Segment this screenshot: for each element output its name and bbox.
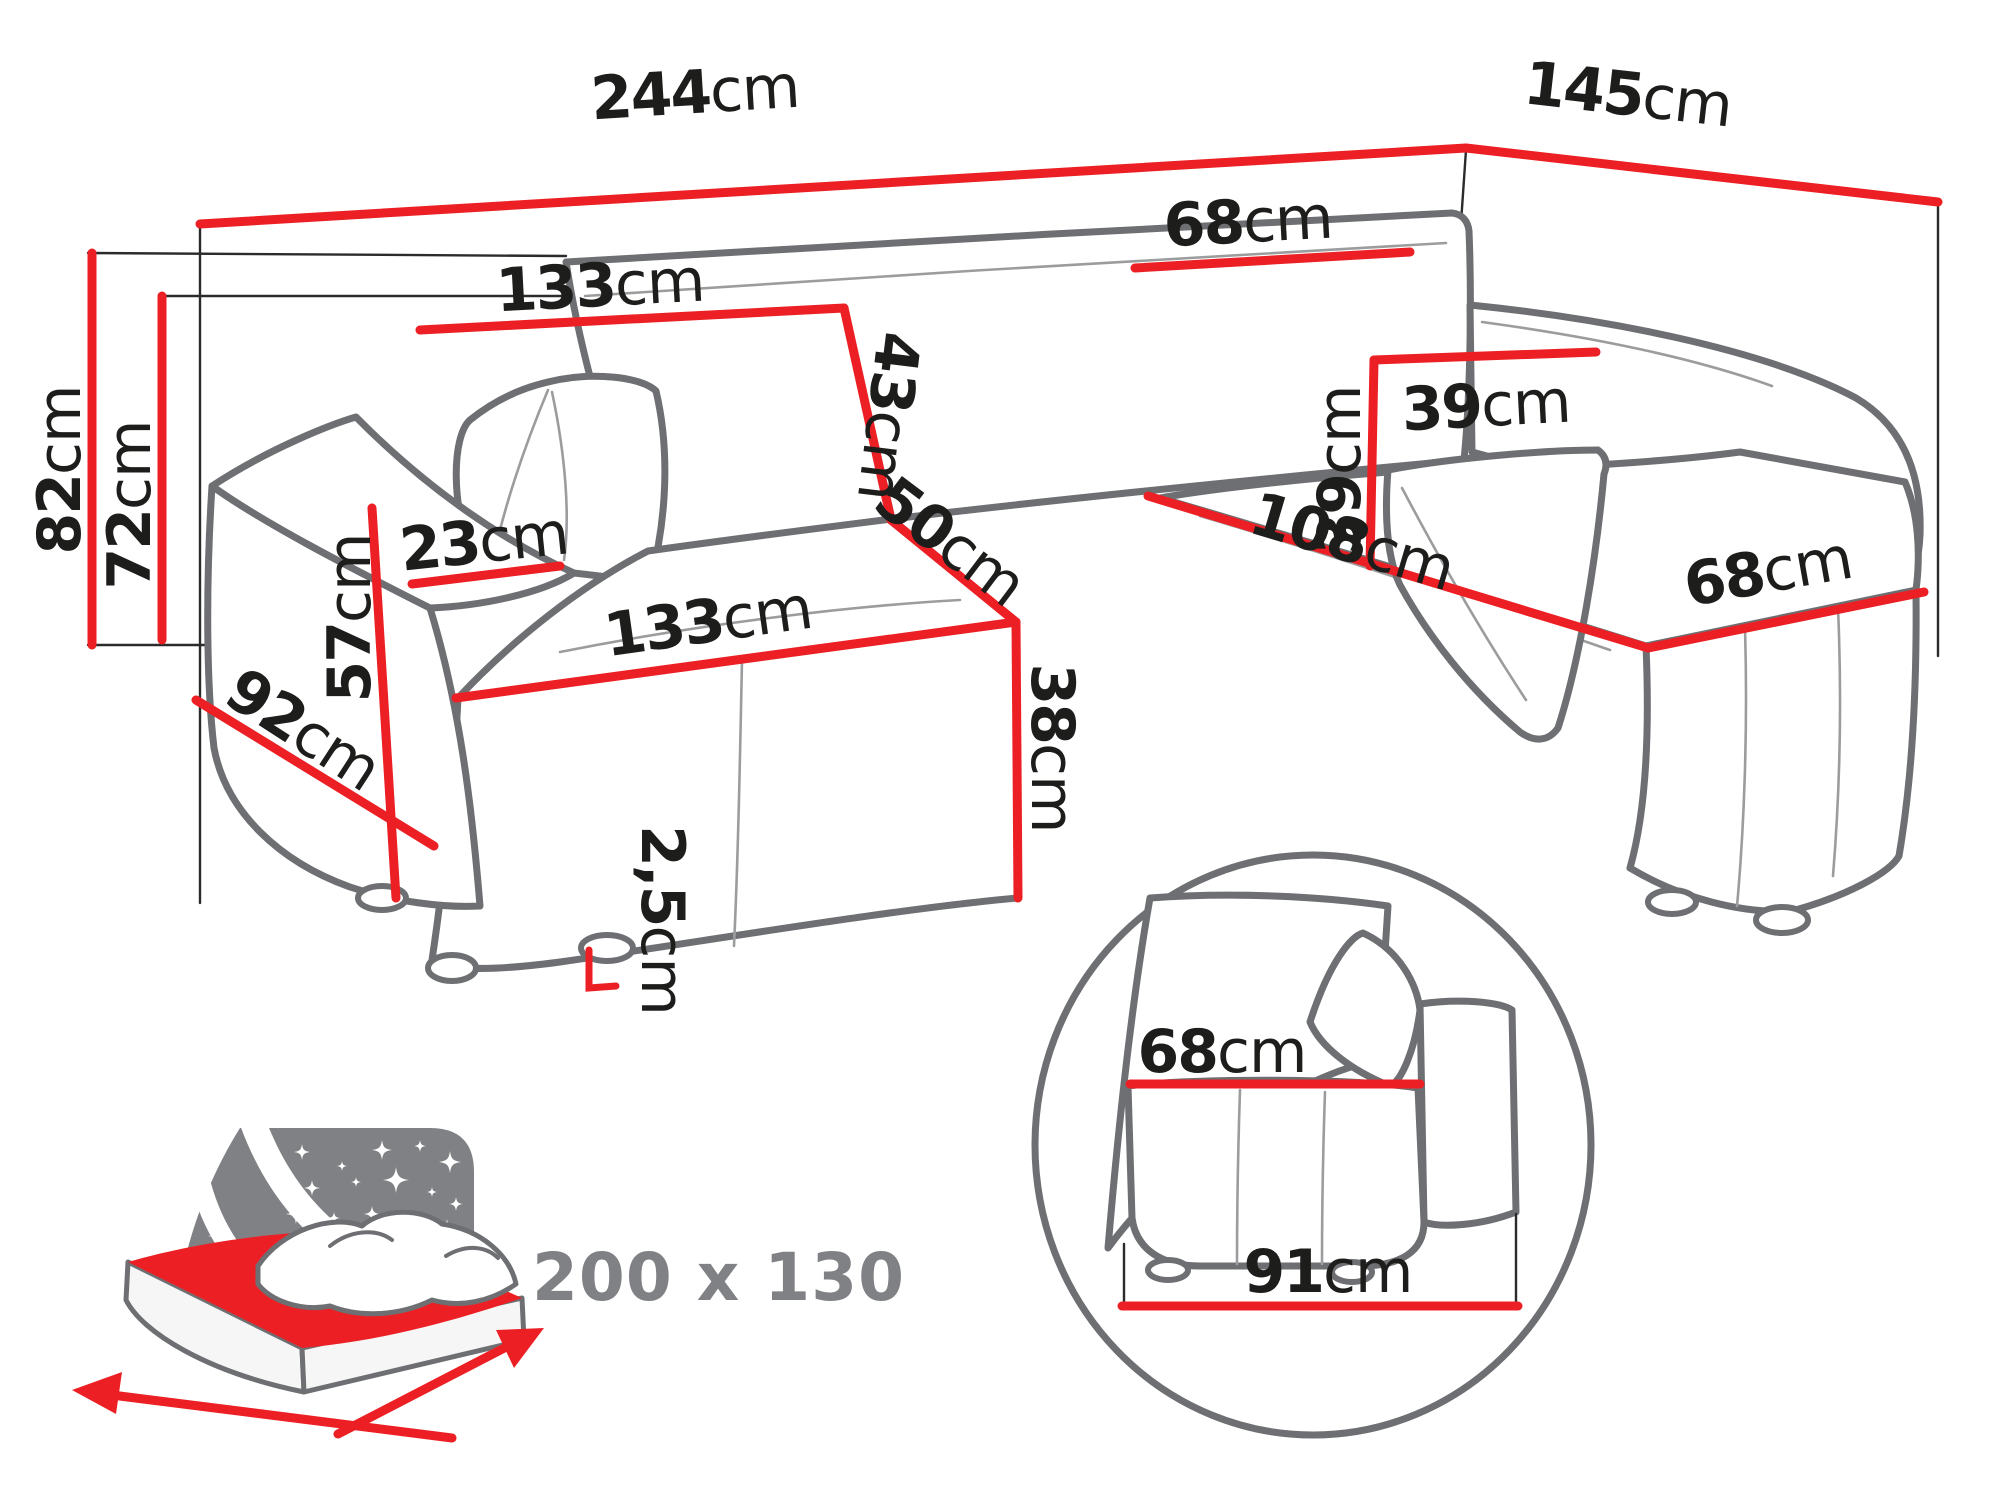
dim-line-145 — [1466, 148, 1938, 202]
label-backrest-width: 133cm — [494, 246, 706, 327]
label-frame-height: 72cm — [95, 421, 165, 590]
detail-view-circle: 68cm 91cm — [1035, 855, 1591, 1435]
label-cushion-width: 39cm — [1400, 367, 1572, 446]
label-seat-height: 38cm — [1017, 664, 1087, 833]
chaise-leg-2 — [1756, 907, 1808, 933]
label-total-depth: 145cm — [1520, 48, 1735, 141]
detail-leg-1 — [1148, 1260, 1188, 1280]
sofa-dimensions-diagram: 244cm 145cm 82cm 72cm 68cm 133cm 43cm 50… — [0, 0, 2000, 1500]
label-total-height: 82cm — [25, 386, 95, 555]
bed-length-arrow-head — [72, 1372, 122, 1414]
front-leg-1 — [428, 955, 476, 981]
chaise-leg-1 — [1648, 890, 1696, 914]
label-leg-height: 2,5cm — [627, 825, 697, 1015]
sofa-bed-icon: 200 x 130 — [72, 1120, 905, 1438]
detail-armrest — [1420, 1001, 1516, 1225]
label-detail-68: 68cm — [1138, 1017, 1307, 1087]
label-armrest-height: 57cm — [315, 534, 385, 703]
label-total-width: 244cm — [589, 52, 802, 135]
label-detail-91: 91cm — [1244, 1237, 1413, 1307]
sleeping-area-size-label: 200 x 130 — [532, 1239, 905, 1316]
label-corner-backrest-width: 68cm — [1162, 183, 1334, 262]
